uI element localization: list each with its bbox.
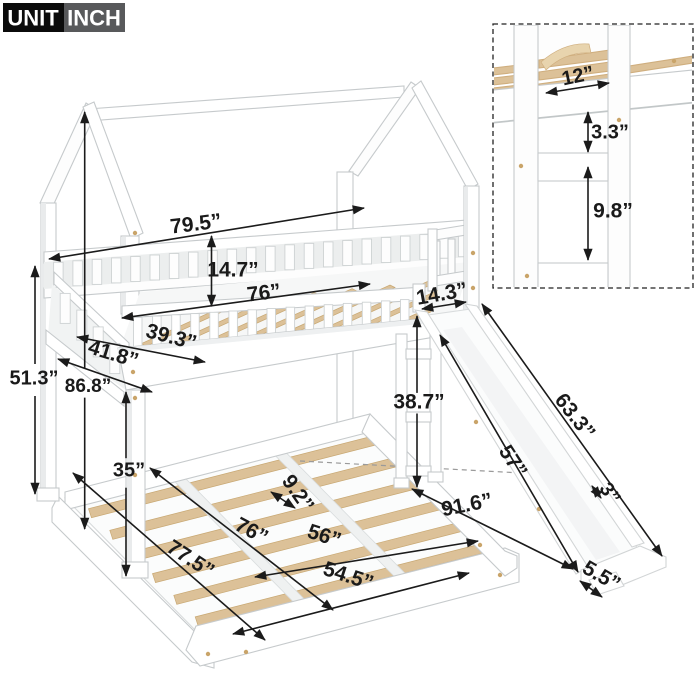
svg-text:35”: 35” bbox=[113, 459, 145, 481]
svg-text:INCH: INCH bbox=[67, 6, 121, 31]
svg-text:14.7”: 14.7” bbox=[207, 259, 258, 282]
svg-text:86.8”: 86.8” bbox=[65, 376, 111, 397]
svg-text:3.3”: 3.3” bbox=[591, 121, 629, 143]
svg-text:51.3”: 51.3” bbox=[10, 367, 59, 389]
svg-text:38.7”: 38.7” bbox=[393, 391, 444, 414]
svg-text:76”: 76” bbox=[246, 280, 282, 307]
svg-text:9.8”: 9.8” bbox=[593, 200, 633, 223]
svg-text:UNIT: UNIT bbox=[7, 6, 59, 31]
